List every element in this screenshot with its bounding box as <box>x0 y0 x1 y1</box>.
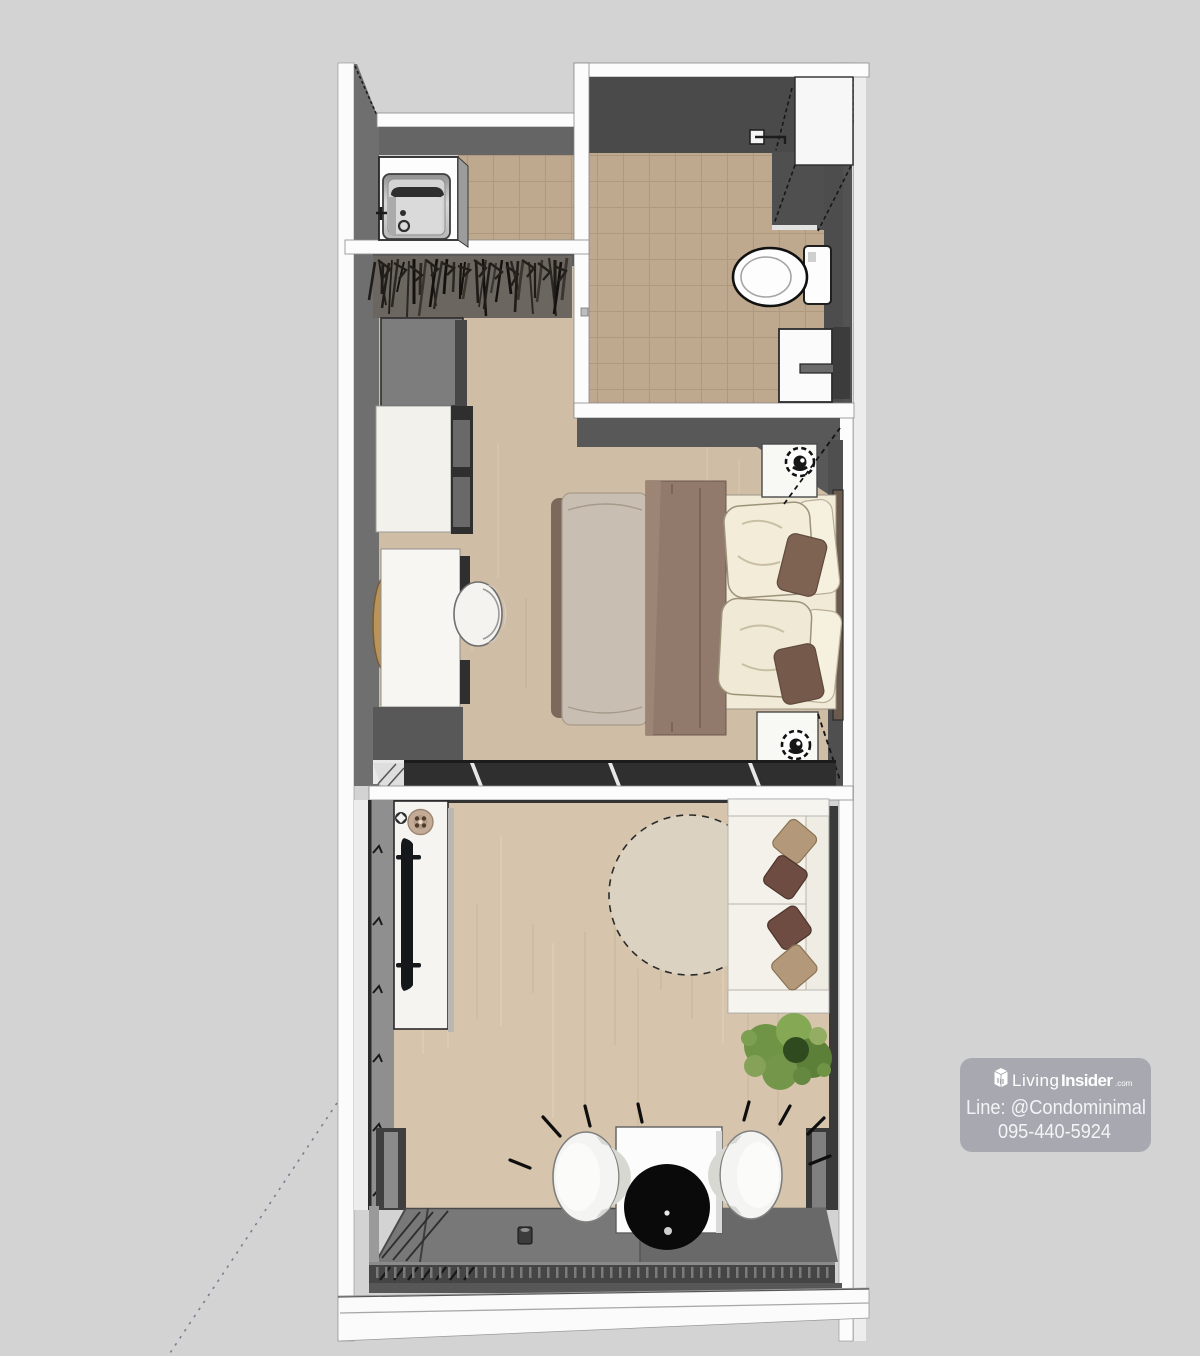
svg-text:Insider: Insider <box>1061 1071 1113 1090</box>
svg-text:Line: @Condominimal: Line: @Condominimal <box>966 1096 1146 1119</box>
svg-text:.com: .com <box>1115 1079 1133 1088</box>
svg-text:Living: Living <box>1012 1071 1059 1090</box>
svg-text:095-440-5924: 095-440-5924 <box>998 1120 1111 1143</box>
